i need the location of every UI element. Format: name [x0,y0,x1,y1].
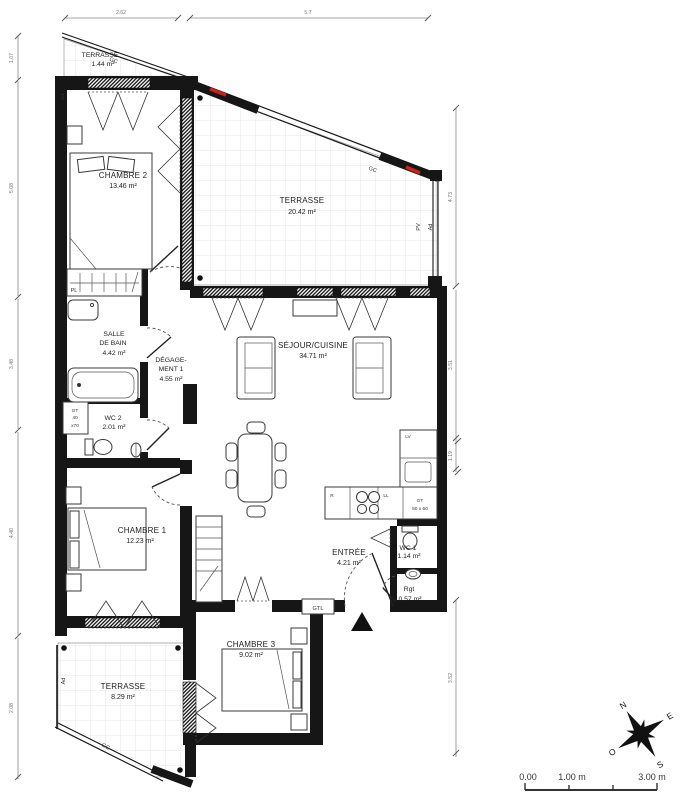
bed-chambre-2 [67,126,152,269]
terrasse-sw-floor [58,643,189,777]
window-chambre3-left [183,682,196,733]
sink-wc2 [131,443,141,457]
scale-0: 0.00 [519,772,537,782]
scale-bar: 0.00 1.00 m 3.00 m [519,772,666,790]
area-sejour: 34.71 m² [299,353,327,360]
label-chambre-1: CHAMBRE 1 [118,526,167,535]
label-chambre-3: CHAMBRE 3 [227,640,276,649]
sofa-right [353,337,391,399]
ad-sw-label: Ad [61,678,67,685]
dim-top-1: 2.62 [116,10,126,16]
dim-right-2: 3.51 [448,360,454,370]
ad-main-label: Ad [428,224,434,231]
ad-c2-label: Ad [60,94,66,100]
label-entree: ENTRÉE [332,548,366,557]
dim-right-1: 4.73 [448,192,454,202]
area-wc2: 2.01 m² [102,424,126,431]
compass-s: S [655,759,665,771]
entrance-arrow [351,612,373,631]
washbasin-sdb [68,300,98,320]
sideboard [293,300,337,316]
closet-pl [67,269,142,296]
dim-top-2: 5.7 [304,10,311,16]
sofa-left [237,337,275,399]
fridge-label: R [330,493,334,499]
basin-wc1 [406,569,421,579]
toilet-wc2 [85,439,112,455]
compass-o: O [607,746,618,758]
label-degagement-2: MENT 1 [159,366,184,373]
label-rgt: Rgt [404,586,415,593]
scale-1m: 1.00 m [558,772,586,782]
compass-n: N [618,699,629,711]
dim-left-5: 2.08 [9,703,15,713]
area-sdb: 4.42 m² [102,350,126,357]
gt-wc-2: 40 [72,415,78,421]
area-rgt: 0.57 m² [398,596,422,603]
gt-kitchen-1: GT [417,498,424,504]
label-wc2: WC 2 [105,415,122,422]
area-terrasse-main: 20.42 m² [288,209,316,216]
label-terrasse-sw: TERRASSE [101,682,146,691]
compass-e: E [665,710,675,722]
dim-left-1: 1.07 [9,53,15,63]
label-sdb-1: SALLE [103,331,125,338]
ll-label: LL [383,493,389,499]
kitchen-counter [325,430,437,519]
dim-right-4: 3.52 [448,673,454,683]
window-sejour-3 [341,288,396,296]
area-chambre-2: 13.46 m² [109,183,137,190]
label-sdb-2: DE BAIN [99,340,126,347]
label-sejour: SÉJOUR/CUISINE [278,341,348,350]
label-terrasse-main: TERRASSE [280,196,325,205]
area-terrasse-sw: 8.29 m² [111,694,135,701]
gt-wc-3: x70 [71,423,79,429]
floor-plan-page: TERRASSE 1.44 m² CHAMBRE 2 13.46 m² TERR… [0,0,689,800]
label-degagement-1: DÉGAGE- [155,355,186,364]
window-sejour-2 [297,288,333,296]
window-sejour-1 [203,288,263,296]
lv-label: LV [405,434,411,440]
window-chambre2-top [88,78,150,88]
dim-right-3: 1.19 [448,451,454,461]
dim-left-4: 4.40 [9,528,15,538]
scale-3m: 3.00 m [638,772,666,782]
area-degagement: 4.55 m² [159,376,183,383]
window-sejour-4 [410,288,430,296]
bathtub [68,368,138,402]
pl-label: PL [71,288,78,294]
wardrobe-hall [196,516,222,602]
compass-star-diagonal [623,716,659,752]
gt-wc-1: GT [72,408,79,414]
gt-kitchen-2: 50 x 60 [412,506,428,512]
area-chambre-1: 12.23 m² [126,538,154,545]
gtl-label: GTL [313,606,324,612]
dining-table-set [226,422,286,517]
window-chambre2-right [182,98,192,282]
label-chambre-2: CHAMBRE 2 [99,171,148,180]
area-wc1: 1.14 m² [397,553,421,560]
dim-left-3: 3.48 [9,359,15,369]
pv-label: PV [416,223,422,231]
label-wc1: WC 1 [400,545,417,552]
dim-left-2: 5.08 [9,183,15,193]
floor-plan: TERRASSE 1.44 m² CHAMBRE 2 13.46 m² TERR… [0,0,689,800]
terrasse-main-floor [192,88,437,285]
area-entree: 4.21 m² [337,560,361,567]
area-chambre-3: 9.02 m² [239,652,263,659]
